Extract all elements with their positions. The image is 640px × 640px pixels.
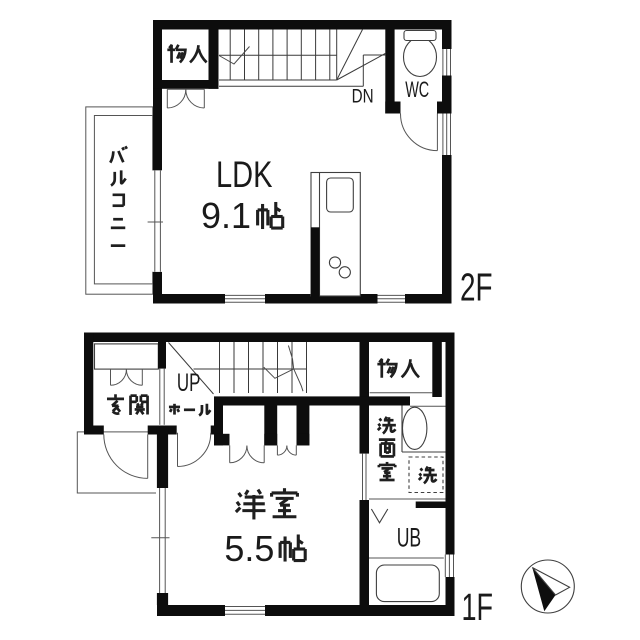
svg-text:UB: UB	[397, 523, 422, 553]
svg-text:5.5: 5.5	[224, 528, 274, 569]
svg-text:WC: WC	[405, 77, 429, 102]
svg-text:LDK: LDK	[216, 154, 273, 195]
svg-text:2F: 2F	[460, 267, 493, 310]
svg-text:1F: 1F	[462, 587, 494, 629]
svg-text:UP: UP	[177, 369, 201, 397]
svg-text:DN: DN	[352, 86, 374, 108]
svg-text:9.1: 9.1	[201, 195, 251, 236]
